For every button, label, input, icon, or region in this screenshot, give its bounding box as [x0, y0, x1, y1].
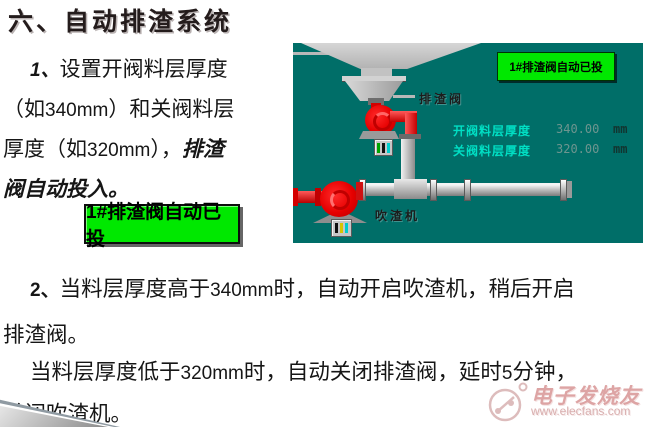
paragraph-1-line-3: 厚度（如320mm），排渣: [3, 130, 295, 170]
watermark-url[interactable]: www.elecfans.com: [531, 404, 630, 418]
indicator-bar: [345, 223, 348, 233]
emphasis-text: 排渣: [182, 137, 224, 161]
open-threshold-unit: mm: [613, 122, 627, 136]
blower-label: 吹渣机: [375, 207, 420, 224]
body-text: 当料层厚度低于: [30, 360, 181, 384]
list-number: 1、: [30, 60, 60, 81]
pipe-flange: [560, 179, 567, 201]
value-text: 340mm: [45, 100, 108, 121]
indicator-bar: [382, 143, 385, 153]
value-text: 320mm: [181, 363, 244, 384]
pipe-tee-junction: [394, 179, 427, 199]
body-text: 排渣阀。: [3, 323, 89, 347]
close-threshold-unit: mm: [613, 142, 627, 156]
paragraph-1: 1、设置开阀料层厚度 （如340mm）和关阀料层 厚度（如320mm），排渣 阀…: [3, 50, 295, 209]
value-text: 340mm: [210, 280, 273, 301]
body-text: ），: [150, 137, 182, 161]
auto-engaged-button[interactable]: 1#排渣阀自动已投: [84, 204, 240, 244]
blower-status-indicator-icon: [331, 219, 352, 237]
open-threshold-value: 340.00: [556, 122, 599, 136]
paragraph-1-line-2: （如340mm）和关阀料层: [3, 90, 295, 130]
hmi-auto-engaged-button[interactable]: 1#排渣阀自动已投: [497, 52, 615, 81]
funnel-lip: [393, 95, 415, 98]
body-text: 时，自动开启吹渣机，稍后开启: [273, 277, 574, 301]
indicator-bar: [387, 143, 390, 153]
slag-valve-base: [359, 131, 399, 139]
hmi-screenshot: 排渣阀 吹渣机 开阀料层厚度 340.00 mm 关阀料层厚度 320.00 m…: [293, 43, 643, 243]
pipe-flange: [464, 179, 471, 201]
body-text: ）和关阀料层: [108, 97, 234, 121]
paragraph-2-line-2: 排渣阀。: [3, 318, 89, 349]
indicator-bar: [377, 143, 380, 153]
body-text: 设置开阀料层厚度: [60, 57, 228, 81]
valve-status-indicator-icon: [374, 139, 393, 156]
value-text: 320mm: [87, 140, 150, 161]
paragraph-1-line-1: 1、设置开阀料层厚度: [3, 50, 295, 90]
body-text: 时，自动关闭排渣阀，延时: [244, 360, 502, 384]
pipe-end-cap: [567, 181, 572, 198]
slag-blower-rotor: [330, 190, 350, 210]
indicator-bar: [335, 223, 338, 233]
body-text: 当料层厚度高于: [60, 277, 211, 301]
elecfans-logo-icon: [484, 380, 530, 424]
pipe-flange: [356, 182, 363, 200]
hopper-icon: [301, 43, 481, 69]
paragraph-2-line-1: 2、当料层厚度高于340mm时，自动开启吹渣机，稍后开启: [30, 272, 574, 303]
open-threshold-label: 开阀料层厚度: [453, 122, 531, 139]
page-title: 六、自动排渣系统: [8, 2, 232, 38]
valve-label: 排渣阀: [419, 90, 464, 107]
vertical-pipe: [401, 139, 415, 184]
list-number: 2、: [30, 280, 60, 301]
body-text: 厚度（如: [3, 137, 87, 161]
close-threshold-label: 关阀料层厚度: [453, 142, 531, 159]
red-elbow-pipe: [405, 113, 417, 135]
indicator-bar: [340, 223, 343, 233]
body-text: （如: [3, 97, 45, 121]
pump-inlet-cap: [293, 188, 298, 206]
close-threshold-value: 320.00: [556, 142, 599, 156]
pipe-flange: [430, 179, 437, 201]
